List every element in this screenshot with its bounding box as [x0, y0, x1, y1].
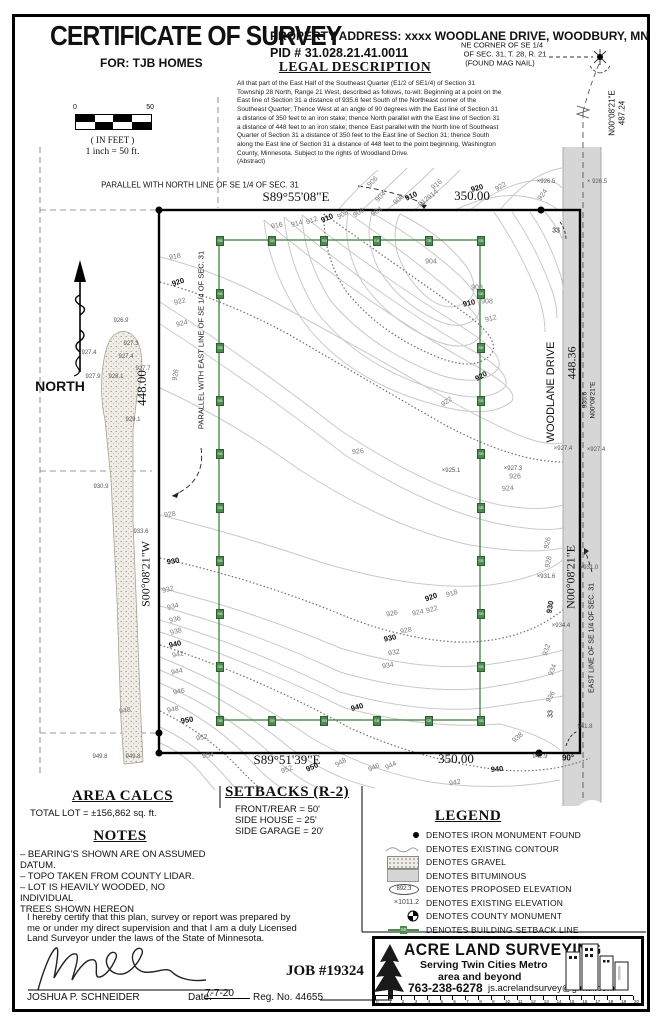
legend-label: DENOTES BUILDING SETBACK LINE: [426, 925, 579, 935]
legal-description-heading: LEGAL DESCRIPTION: [265, 59, 445, 75]
legend-row: DENOTES BITUMINOUS: [368, 870, 640, 883]
setbacks-heading: SETBACKS (R-2): [225, 784, 365, 801]
leader-arrows: [172, 186, 592, 746]
firm-phone: 763-238-6278: [408, 981, 483, 995]
legend-label: DENOTES EXISTING ELEVATION: [426, 898, 563, 908]
legend-label: DENOTES BITUMINOUS: [426, 871, 526, 881]
setback-line-icon: SB: [388, 926, 419, 934]
legend-row: DENOTES COUNTY MONUMENT: [368, 910, 640, 923]
scale-units: ( IN FEET ): [75, 135, 150, 145]
legal-description-body: All that part of the East Half of the So…: [237, 80, 567, 167]
legend-label: DENOTES COUNTY MONUMENT: [426, 911, 562, 921]
setback-item: SIDE HOUSE = 25': [235, 815, 365, 826]
existing-elevation-icon: ×1011.2: [394, 899, 419, 906]
contours-index: [160, 214, 590, 790]
setback-item: FRONT/REAR = 50': [235, 804, 365, 815]
north-arrow-icon: [74, 260, 86, 376]
area-calcs-heading: AREA CALCS: [30, 788, 215, 805]
area-calcs-total: TOTAL LOT = ±156,862 sq. ft.: [30, 808, 215, 819]
scale-bar-checker: [75, 114, 152, 130]
date-underline: [205, 998, 250, 999]
note-item: – BEARING'S SHOWN ARE ON ASSUMED DATUM.: [20, 849, 220, 871]
setback-item: SIDE GARAGE = 20': [235, 826, 365, 837]
pid-number: PID # 31.028.21.41.0011: [270, 46, 408, 60]
notes-heading: NOTES: [20, 828, 220, 845]
signature: [38, 948, 206, 990]
gravel-driveway: [102, 331, 143, 764]
client-line: FOR: TJB HOMES: [100, 56, 203, 70]
legend-panel: LEGEND DENOTES IRON MONUMENT FOUNDDENOTE…: [368, 808, 640, 937]
proposed-elevation-icon: 892.3: [389, 884, 419, 895]
legend-row: DENOTES EXISTING CONTOUR: [368, 843, 640, 856]
firm-tagline-1: Serving Twin Cities Metro: [420, 959, 548, 971]
legend-row: DENOTES GRAVEL: [368, 856, 640, 869]
scale-ratio: 1 inch = 50 ft.: [75, 147, 150, 157]
legend-label: DENOTES EXISTING CONTOUR: [426, 844, 559, 854]
firm-name: ACRE LAND SURVEYING: [404, 941, 602, 960]
gravel-swatch: [387, 856, 419, 869]
notes-panel: NOTES – BEARING'S SHOWN ARE ON ASSUMED D…: [20, 828, 220, 915]
note-item: – TOPO TAKEN FROM COUNTY LIDAR.: [20, 871, 220, 882]
legend-row: 892.3DENOTES PROPOSED ELEVATION: [368, 883, 640, 896]
scale-zero: 0: [73, 104, 77, 111]
legend-row: ×1011.2DENOTES EXISTING ELEVATION: [368, 897, 640, 910]
found-mag-nail-icon: [549, 49, 610, 73]
legend-label: DENOTES PROPOSED ELEVATION: [426, 884, 572, 894]
woodlane-drive-road: [560, 147, 603, 810]
job-number: JOB #19324: [286, 963, 364, 980]
contour-icon: [385, 844, 419, 854]
legend-label: DENOTES IRON MONUMENT FOUND: [426, 830, 581, 840]
legend-label: DENOTES GRAVEL: [426, 857, 506, 867]
legend-heading: LEGEND: [368, 808, 568, 825]
setbacks-panel: SETBACKS (R-2) FRONT/REAR = 50'SIDE HOUS…: [225, 784, 365, 837]
reg-number: Reg. No. 44655: [253, 992, 323, 1003]
iron-monument-icon: [413, 832, 419, 838]
contours-light: [160, 168, 563, 790]
certification-text: I hereby certify that this plan, survey …: [27, 913, 297, 945]
scale-bar: 0 50 ( IN FEET ) 1 inch = 50 ft.: [75, 104, 152, 157]
iron-monuments: [156, 207, 545, 757]
firm-email: js.acrelandsurvey@gmail.com: [488, 983, 615, 994]
logo-ruler: 01234567891011121314151617181920: [375, 995, 633, 1006]
area-calcs-panel: AREA CALCS TOTAL LOT = ±156,862 sq. ft.: [30, 788, 215, 819]
surveyor-name: JOSHUA P. SCHNEIDER: [27, 992, 140, 1003]
county-monument-icon: [407, 910, 419, 922]
legend-row: DENOTES IRON MONUMENT FOUND: [368, 829, 640, 842]
property-address: PROPERTY ADDRESS: xxxx WOODLANE DRIVE, W…: [270, 29, 649, 43]
legend-row: SBDENOTES BUILDING SETBACK LINE: [368, 924, 640, 937]
note-item: – LOT IS HEAVILY WOODED, NO INDIVIDUAL T…: [20, 882, 220, 915]
building-setback-line: [219, 240, 480, 720]
survey-document: 0 50 ( IN FEET ) 1 inch = 50 ft. CERTIFI…: [0, 0, 662, 1024]
scale-fifty: 50: [146, 104, 154, 111]
bituminous-swatch: [387, 869, 419, 882]
